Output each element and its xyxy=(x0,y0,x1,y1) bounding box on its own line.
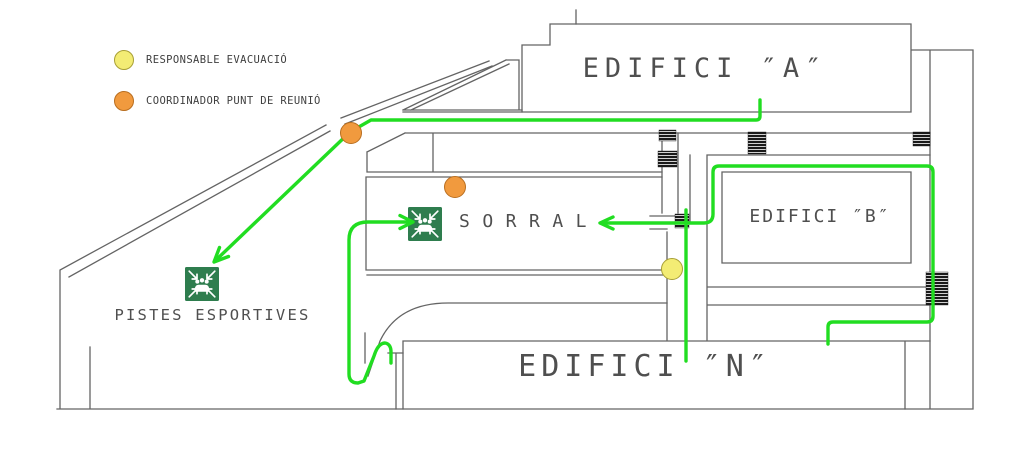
pistes-esportives-label: PISTES ESPORTIVES xyxy=(100,306,325,324)
legend-coordinador-dot xyxy=(114,91,134,111)
evacuation-plan: RESPONSABLE EVACUACIÓ COORDINADOR PUNT D… xyxy=(0,0,1024,457)
legend-coordinador-label: COORDINADOR PUNT DE REUNIÓ xyxy=(146,95,321,107)
building-b-label: EDIFICI ″B″ xyxy=(720,206,920,227)
legend-responsable-label: RESPONSABLE EVACUACIÓ xyxy=(146,54,287,66)
legend-responsable-dot xyxy=(114,50,134,70)
sorral-label: SORRAL xyxy=(459,211,599,232)
assembly-point-icon-sorral xyxy=(408,207,442,241)
building-n-label: EDIFICI ″N″ xyxy=(450,349,840,384)
assembly-point-icon-pistes-esportives xyxy=(185,267,219,301)
building-a-label: EDIFICI ″A″ xyxy=(510,53,900,84)
